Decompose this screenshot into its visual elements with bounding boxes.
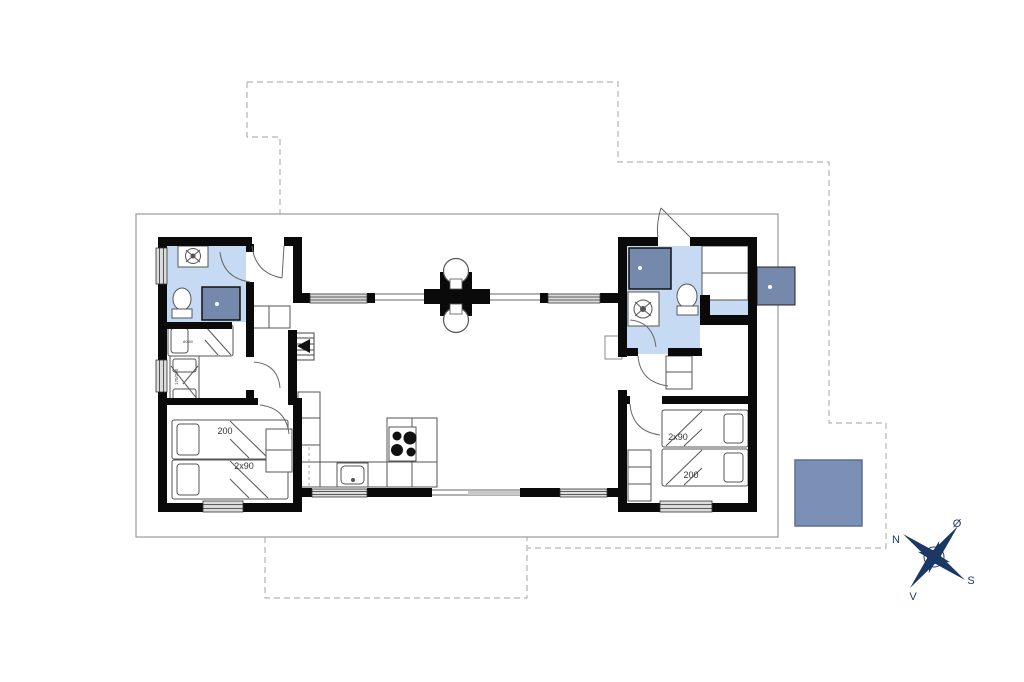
- compass-east-label: Ø: [953, 518, 962, 530]
- bathroom-cabinet: [702, 246, 748, 273]
- window: [156, 248, 167, 284]
- dashed-west-boundary: [247, 82, 280, 215]
- hall-cabinet: [269, 306, 290, 328]
- stove-icon: [389, 427, 417, 461]
- wardrobe-right: [628, 467, 651, 484]
- bunk-small-label: 80/80: [183, 339, 194, 344]
- floor-plan-page: N Ø S V 200 2x90 2x90 200 80/80 170/200: [0, 0, 1024, 682]
- sink-icon: [337, 463, 368, 487]
- wardrobe-right: [628, 450, 651, 467]
- bed-length-label: 200: [683, 470, 698, 480]
- stairs-icon: [296, 333, 314, 360]
- window: [312, 489, 367, 497]
- bed-length-label: 200: [217, 426, 232, 436]
- shower-icon: [629, 248, 671, 289]
- hall-wardrobe: [666, 372, 692, 389]
- wardrobe-left: [266, 429, 292, 450]
- washing-machine-icon: [628, 292, 659, 326]
- wardrobe-left: [266, 450, 292, 472]
- compass-south-label: S: [967, 575, 974, 587]
- outdoor-shower-drain: [768, 285, 772, 289]
- shower-drain: [215, 302, 219, 306]
- floor-plan-canvas: N Ø S V 200 2x90 2x90 200 80/80 170/200: [0, 0, 1024, 682]
- compass-north-label: N: [892, 534, 900, 546]
- toilet-icon: [172, 288, 192, 318]
- blue-annex-square: [795, 460, 862, 526]
- window: [560, 489, 607, 497]
- hall-wardrobe: [666, 356, 692, 372]
- bunk-bed-label: 170/200: [174, 368, 179, 385]
- window: [548, 294, 600, 303]
- bed-width-label: 2x90: [234, 461, 254, 471]
- wardrobe-right: [628, 484, 651, 501]
- single-bed: [168, 325, 233, 356]
- bed-right-2: [662, 449, 748, 486]
- window: [203, 501, 243, 512]
- washing-machine-icon: [178, 246, 208, 267]
- bed-width-label: 2x90: [668, 432, 688, 442]
- window: [156, 360, 167, 392]
- window: [660, 501, 712, 512]
- compass-west-label: V: [909, 591, 917, 603]
- shower-icon: [202, 287, 240, 320]
- shower-drain: [638, 266, 642, 270]
- outdoor-shower-icon: [757, 267, 795, 305]
- toilet-icon: [677, 284, 698, 315]
- compass-rose-icon: N Ø S V: [892, 518, 975, 603]
- dashed-south-terrace: [265, 537, 527, 598]
- window: [310, 294, 367, 303]
